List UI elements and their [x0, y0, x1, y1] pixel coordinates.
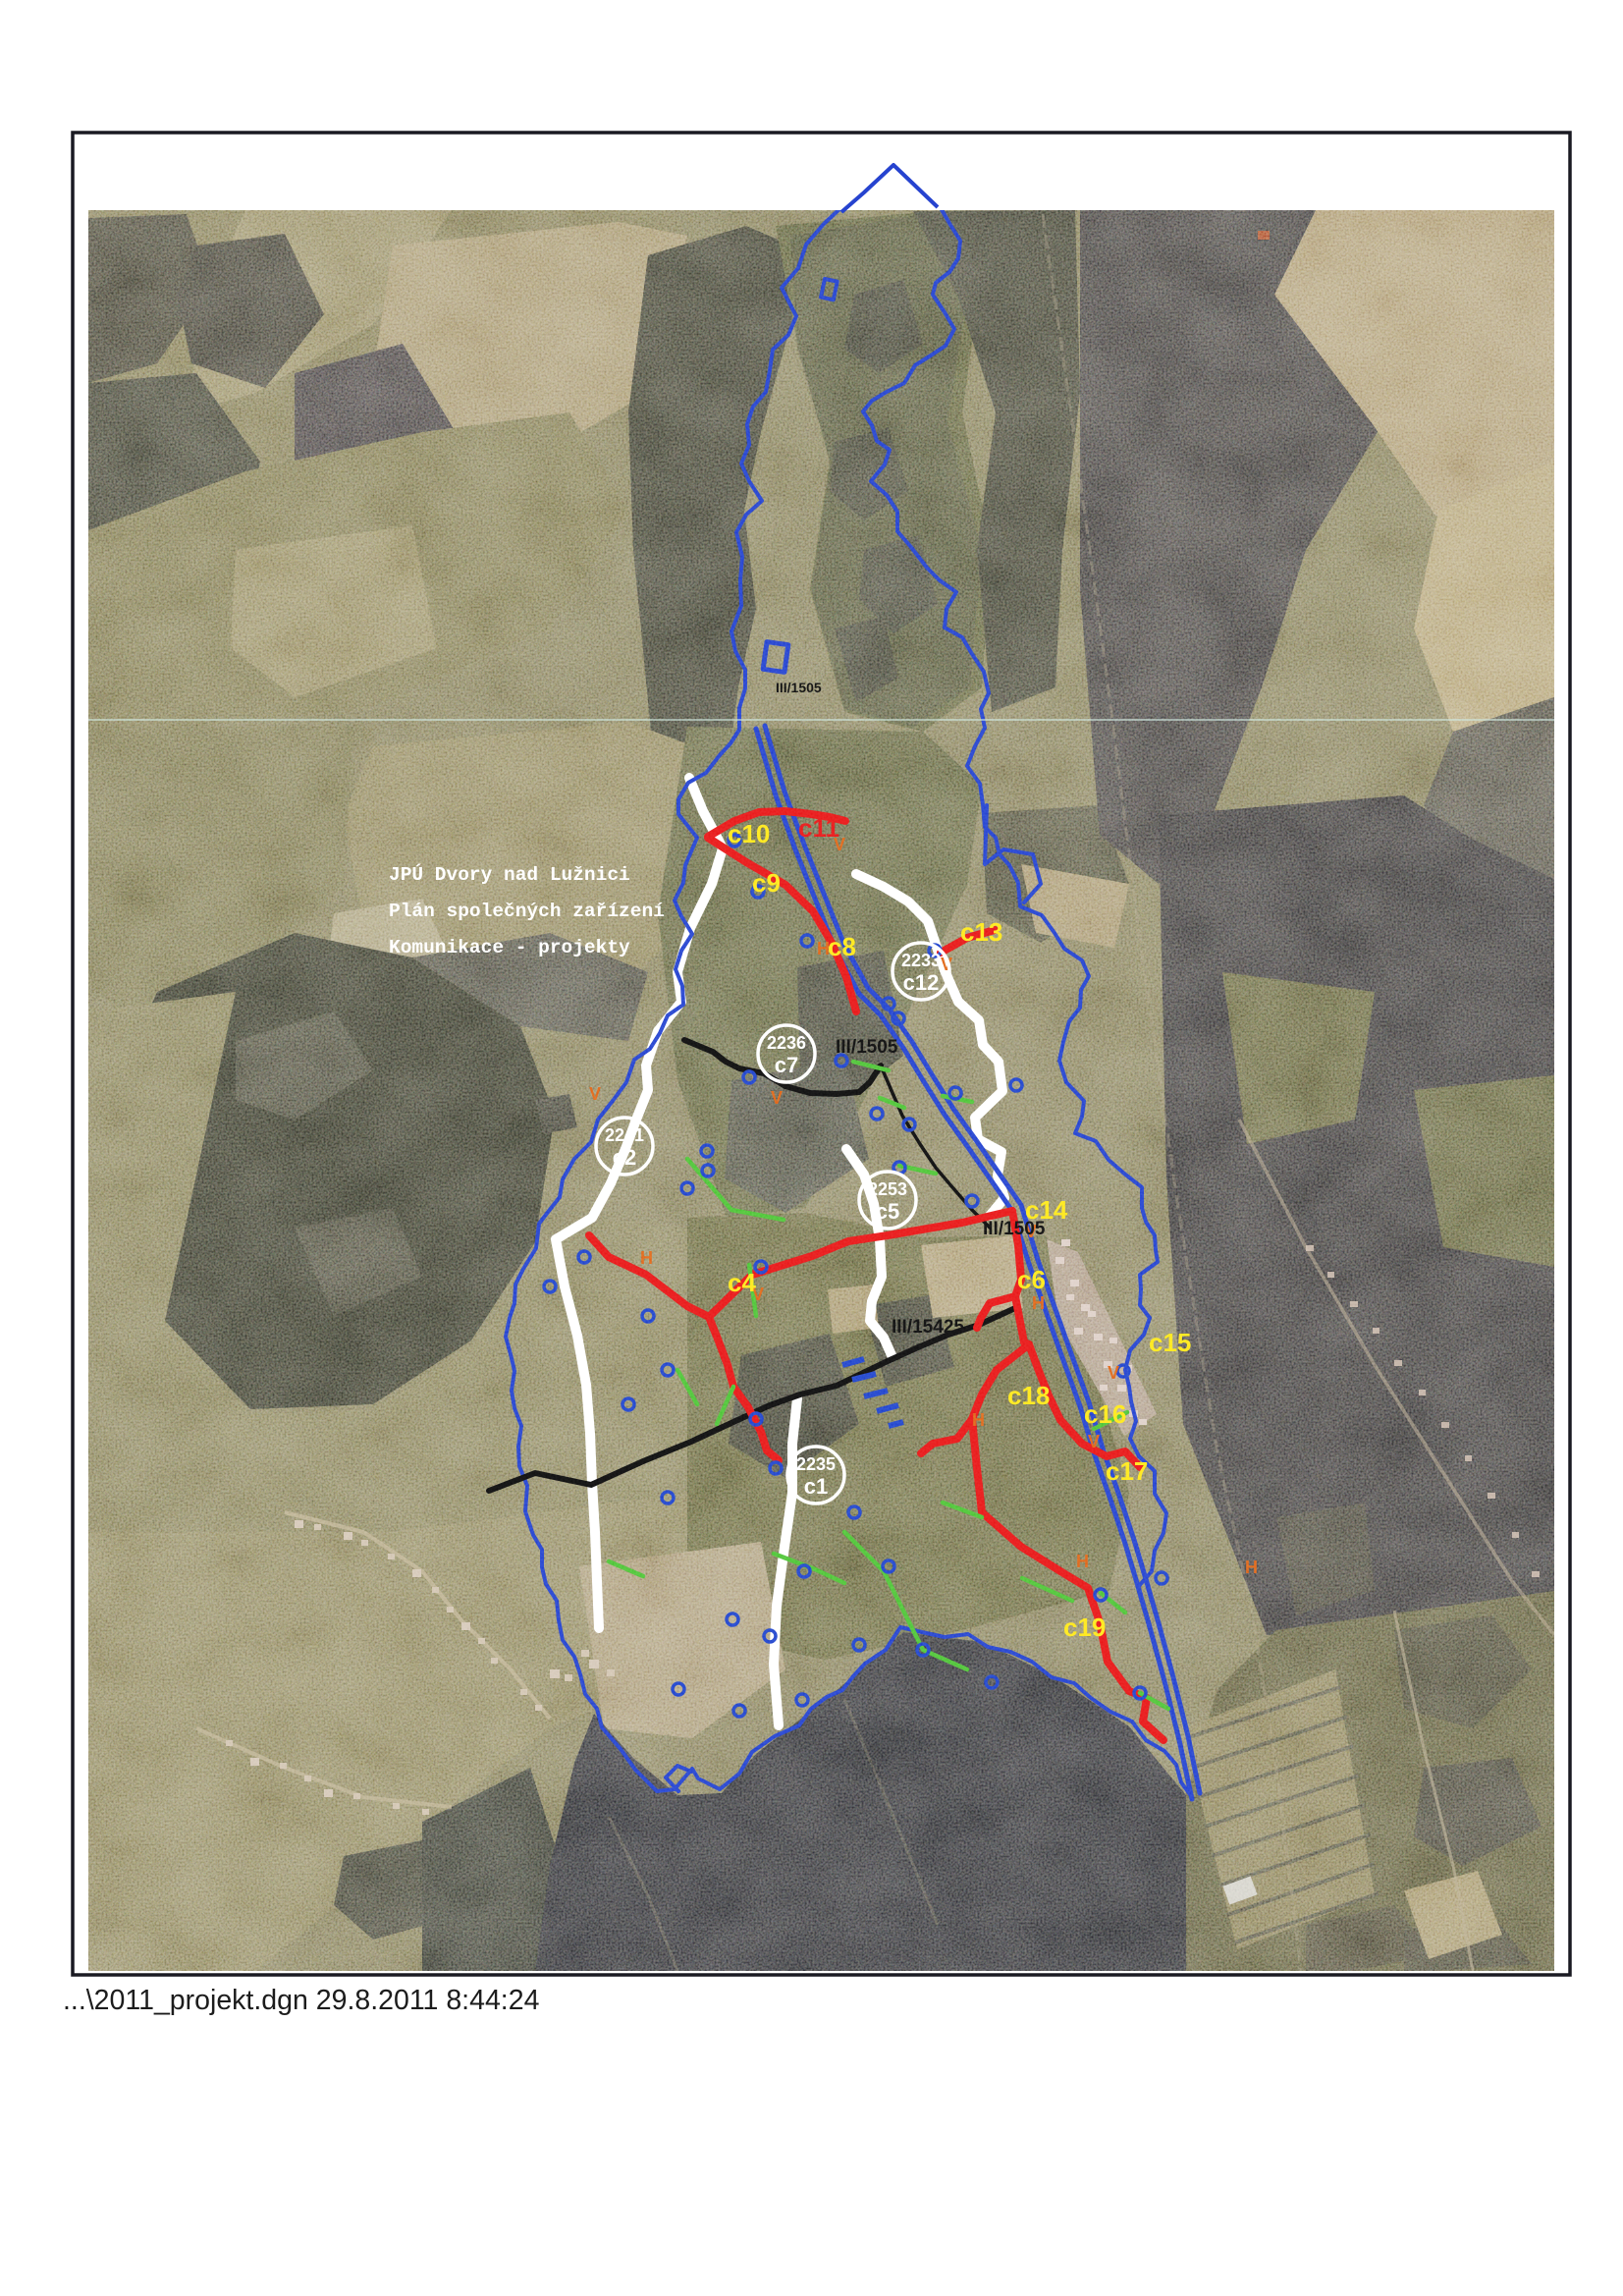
svg-text:...\2011_projekt.dgn 29.8.201: ...\2011_projekt.dgn 29.8.2011 8:44:24	[63, 1985, 540, 2016]
